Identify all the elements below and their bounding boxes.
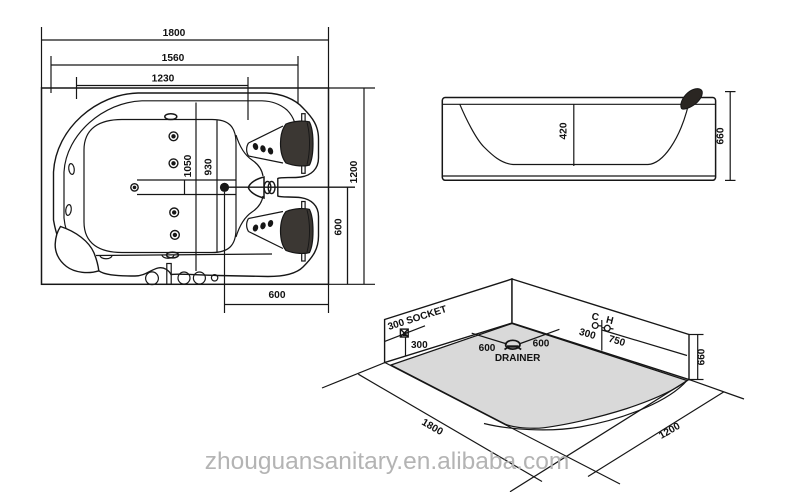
svg-text:600: 600 — [479, 343, 496, 354]
svg-text:1230: 1230 — [152, 74, 175, 85]
svg-text:660: 660 — [716, 127, 727, 144]
svg-text:420: 420 — [559, 122, 570, 139]
svg-text:930: 930 — [204, 158, 215, 175]
svg-text:zhouguansanitary.en.alibaba.co: zhouguansanitary.en.alibaba.com — [205, 448, 570, 475]
svg-text:660: 660 — [697, 348, 708, 365]
svg-text:1050: 1050 — [183, 154, 194, 177]
svg-text:1800: 1800 — [163, 28, 186, 39]
svg-text:DRAINER: DRAINER — [495, 353, 541, 364]
svg-text:300: 300 — [411, 340, 428, 351]
svg-text:1560: 1560 — [162, 53, 185, 64]
svg-text:1200: 1200 — [349, 160, 360, 183]
svg-text:600: 600 — [269, 290, 286, 301]
svg-text:600: 600 — [533, 339, 550, 350]
svg-text:600: 600 — [334, 218, 345, 235]
